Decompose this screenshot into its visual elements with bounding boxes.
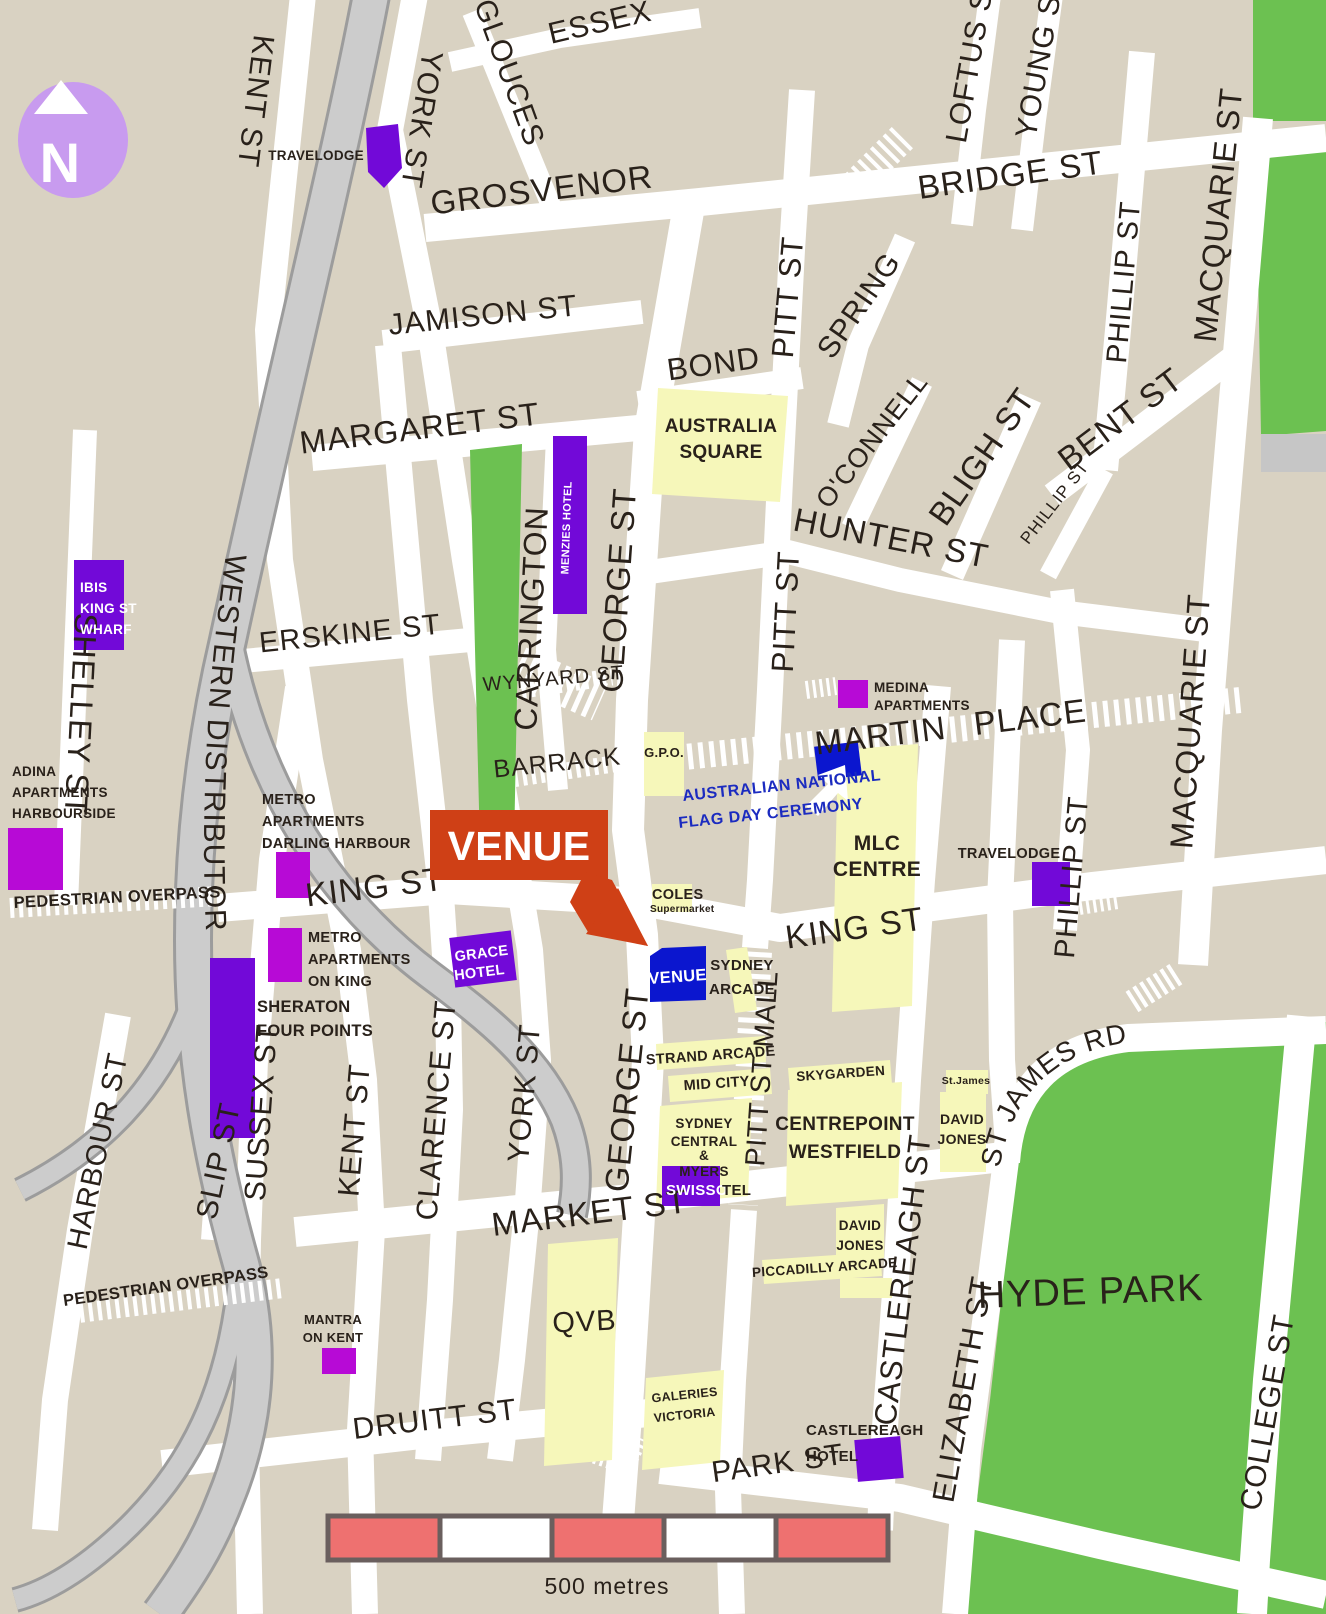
scale-segment-1 (328, 1516, 440, 1560)
label-mantra-line1: MANTRA (304, 1312, 362, 1327)
label-travelodge-right: TRAVELODGE (958, 846, 1061, 862)
domain-gray-band (1261, 434, 1326, 472)
label-sydney-arcade-line1: SYDNEY (710, 957, 774, 974)
map-canvas: KENT ST YORK ST GLOUCES ESSEX SHELLEY ST… (0, 0, 1326, 1614)
label-ibis-line1: IBIS (80, 580, 107, 595)
label-travelodge-top: TRAVELODGE (268, 148, 364, 163)
label-medina-line1: MEDINA (874, 680, 929, 695)
label-metro-dh-line3: DARLING HARBOUR (262, 836, 411, 852)
label-sydney-central-line4: MYERS (679, 1164, 729, 1179)
label-st-james-building: St.James (942, 1075, 991, 1087)
label-hyde-park: HYDE PARK (977, 1267, 1204, 1317)
label-david-jones-south-line1: DAVID (839, 1218, 882, 1233)
label-medina-line2: APARTMENTS (874, 698, 970, 713)
label-centrepoint-line1: CENTREPOINT (775, 1114, 915, 1135)
label-sydney-arcade-line2: ARCADE (709, 981, 775, 998)
compass-letter: N (40, 131, 81, 194)
label-metro-k-line3: ON KING (308, 974, 372, 990)
label-mlc-line2: CENTRE (833, 858, 921, 881)
label-metro-dh-line2: APARTMENTS (262, 814, 365, 830)
label-sheraton-line2: FOUR POINTS (257, 1022, 373, 1040)
label-david-jones-south-line2: JONES (836, 1238, 883, 1253)
label-gpo: G.P.O. (644, 745, 684, 760)
label-coles-line2: Supermarket (650, 904, 715, 915)
label-ibis-line2: KING ST (80, 601, 137, 616)
label-sydney-central-line2: CENTRAL (671, 1134, 738, 1149)
label-australia-square-line2: SQUARE (679, 442, 762, 463)
scale-segment-2 (440, 1516, 552, 1560)
label-mantra-line2: ON KENT (303, 1330, 364, 1345)
label-castlereagh-hotel-line2: HOTEL (806, 1448, 858, 1465)
label-castlereagh-hotel-line1: CASTLEREAGH (806, 1422, 923, 1439)
domain-park-north (1253, 0, 1326, 121)
label-david-jones-north-line1: DAVID (940, 1111, 984, 1127)
label-swissotel-dark: TEL (722, 1182, 751, 1199)
metro-on-king-box (268, 928, 302, 982)
label-coles-line1: COLES (652, 887, 703, 903)
label-metro-k-line2: APARTMENTS (308, 952, 411, 968)
label-sydney-central-line3: & (699, 1148, 709, 1163)
label-swissotel-white: SWISSO (666, 1182, 728, 1199)
scale-segment-4 (664, 1516, 776, 1560)
venue-callout-label: VENUE (448, 823, 591, 869)
scale-label: 500 metres (544, 1573, 669, 1599)
gpo-building (644, 732, 684, 796)
label-adina-line2: APARTMENTS (12, 785, 108, 800)
label-sydney-central-line1: SYDNEY (675, 1116, 732, 1131)
scale-segment-3 (552, 1516, 664, 1560)
medina-apartments-box (838, 680, 868, 708)
label-pitt-st-mid: PITT ST (765, 550, 806, 673)
label-metro-dh-line1: METRO (262, 792, 316, 808)
adina-apartments-box (8, 828, 63, 890)
qvb-building (544, 1238, 618, 1466)
scale-segment-5 (776, 1516, 888, 1560)
mantra-on-kent-box (322, 1348, 356, 1374)
label-adina-line3: HARBOURSIDE (12, 806, 116, 821)
sydney-cbd-map: KENT ST YORK ST GLOUCES ESSEX SHELLEY ST… (0, 0, 1326, 1614)
label-centrepoint-line2: WESTFIELD (789, 1142, 901, 1163)
label-metro-k-line1: METRO (308, 930, 362, 946)
label-adina-line1: ADINA (12, 764, 56, 779)
label-ibis-line3: WHARF (80, 622, 132, 637)
label-mlc-line1: MLC (854, 832, 900, 855)
label-sheraton-line1: SHERATON (257, 998, 350, 1016)
label-qvb: QVB (552, 1304, 618, 1339)
castlereagh-hotel-box (854, 1436, 903, 1482)
label-australia-square-line1: AUSTRALIA (665, 416, 777, 437)
label-david-jones-north-line2: JONES (938, 1131, 987, 1147)
